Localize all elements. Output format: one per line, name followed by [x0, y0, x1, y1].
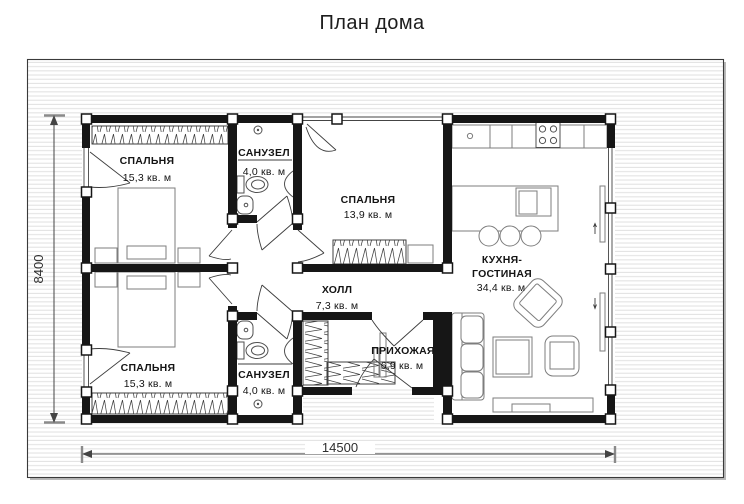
- bar-stool: [479, 226, 499, 246]
- room-name: КУХНЯ-: [482, 254, 523, 266]
- nightstand: [178, 248, 200, 263]
- dimension-width-label: 14500: [322, 440, 358, 455]
- tv-stand: [493, 398, 593, 412]
- pillow: [127, 246, 166, 259]
- nightstand: [95, 248, 117, 263]
- coffee-table: [493, 337, 532, 377]
- room-name: СПАЛЬНЯ: [120, 155, 175, 167]
- wardrobe-entry: [303, 321, 328, 385]
- armchair: [545, 336, 579, 376]
- room-name: СПАЛЬНЯ: [121, 362, 176, 374]
- room-area: 6,9 кв. м: [381, 360, 424, 372]
- wall-bottom-right: [443, 415, 615, 423]
- room-name: САНУЗЕЛ: [238, 369, 290, 381]
- room-name: САНУЗЕЛ: [238, 147, 290, 159]
- pillow: [127, 276, 166, 289]
- dimension-height-label: 8400: [31, 255, 46, 284]
- wardrobe-bedroom-middle: [333, 240, 406, 264]
- wall-kitchen-west: [443, 123, 452, 272]
- room-name: ХОЛЛ: [322, 284, 352, 296]
- room-area: 15,3 кв. м: [124, 378, 173, 390]
- room-area: 15,3 кв. м: [123, 172, 172, 184]
- bar-stool: [500, 226, 520, 246]
- window-bedroom-top: [82, 148, 90, 188]
- washbasin-icon: [237, 321, 253, 339]
- nightstand: [178, 272, 200, 287]
- toilet-icon: [237, 176, 268, 193]
- wall-middle-right: [296, 264, 452, 272]
- washbasin-icon: [237, 196, 253, 214]
- room-name: СПАЛЬНЯ: [341, 194, 396, 206]
- window-bedroom-middle: [303, 115, 443, 123]
- room-area: 4,0 кв. м: [243, 166, 286, 178]
- room-area: 4,0 кв. м: [243, 385, 286, 397]
- room-name: ГОСТИНАЯ: [472, 268, 532, 280]
- sofa: [452, 313, 484, 400]
- room-area: 13,9 кв. м: [344, 209, 393, 221]
- stove-icon: [536, 123, 560, 148]
- room-area: 7,3 кв. м: [316, 300, 359, 312]
- wall-bottom-left: [82, 415, 303, 423]
- wall-middle-left: [82, 264, 237, 272]
- kitchen-counter: [452, 123, 607, 149]
- nightstand: [95, 272, 117, 287]
- wardrobe-bedroom-bottom: [92, 393, 228, 414]
- room-area: 34,4 кв. м: [477, 282, 526, 294]
- floor-plan-page: План дома: [0, 0, 744, 504]
- wardrobe-bedroom-top: [92, 126, 228, 144]
- room-name: ПРИХОЖАЯ: [371, 345, 434, 357]
- bar-stool: [521, 226, 541, 246]
- floor-plan-drawing: 8400 14500 СПАЛЬНЯ 15,3 кв. м САНУЗЕЛ 4,…: [0, 0, 744, 504]
- window-bedroom-bottom: [82, 353, 90, 388]
- toilet-icon: [237, 342, 268, 359]
- nightstand-bedroom-middle: [408, 245, 433, 263]
